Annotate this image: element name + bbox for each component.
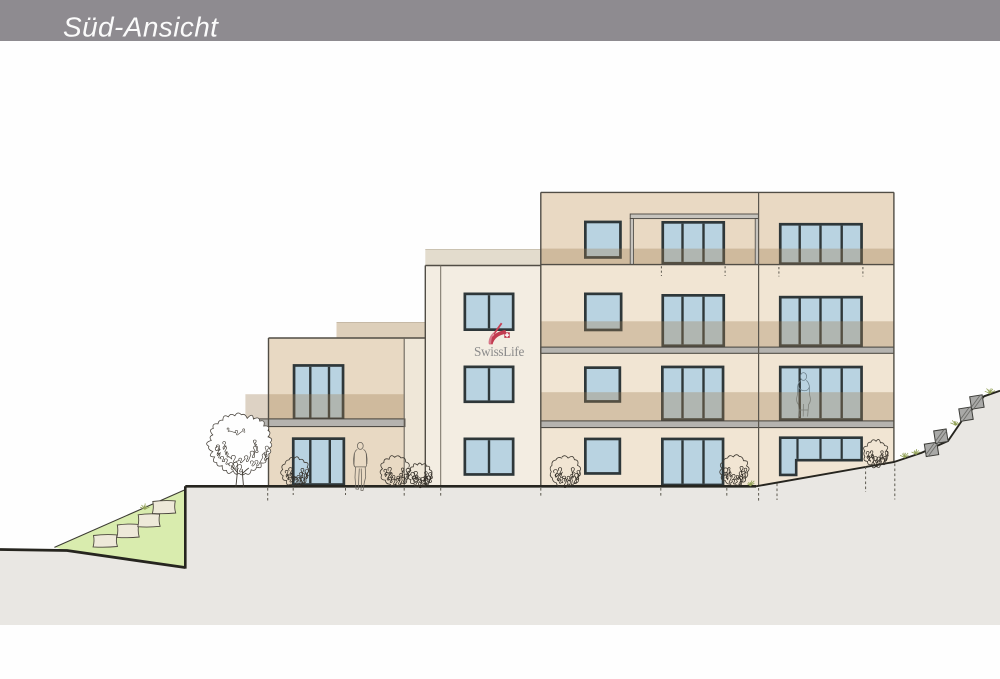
svg-text:Süd-Ansicht: Süd-Ansicht: [63, 12, 219, 43]
svg-text:SwissLife: SwissLife: [474, 344, 524, 359]
